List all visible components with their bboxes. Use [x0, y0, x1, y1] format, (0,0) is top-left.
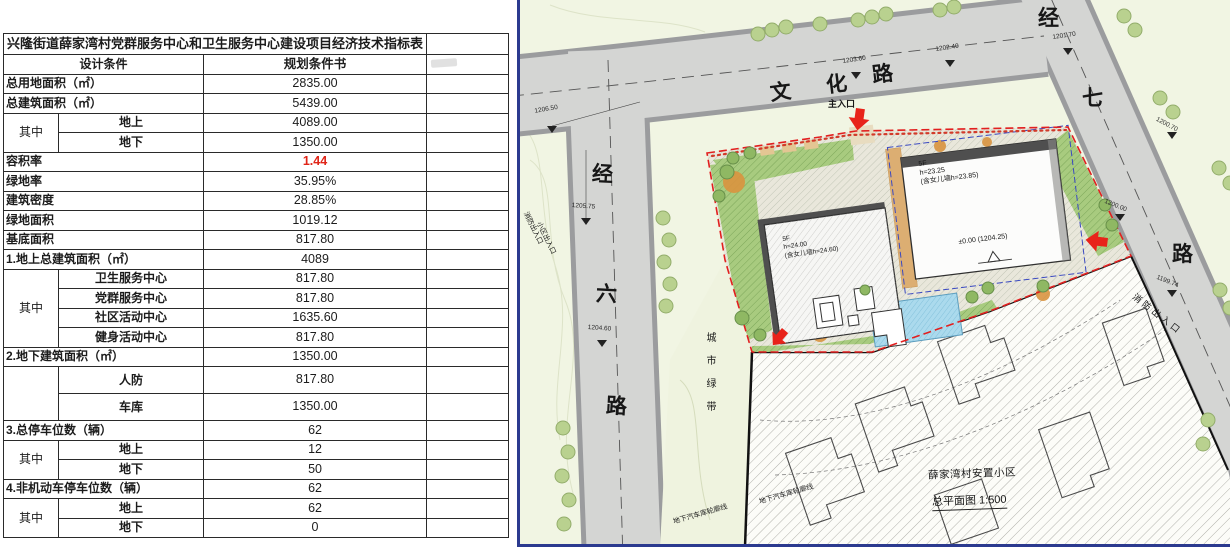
sub-cell: 党群服务中心: [59, 289, 204, 309]
table-row: 绿地率35.95%: [4, 172, 509, 192]
sub-cell: 地上: [59, 499, 204, 519]
lbl-cell: 绿地率: [4, 172, 204, 192]
blank-cell: [427, 347, 509, 367]
lbl-cell: 2.地下建筑面积（㎡）: [4, 347, 204, 367]
road-label-jingqi-3: 路: [1172, 238, 1193, 268]
grp-cell: 其中: [4, 113, 59, 152]
plan-title-label: 总平面图 1:500: [932, 491, 1007, 512]
table-row: 建筑密度28.85%: [4, 191, 509, 211]
road-label-jingliu-2: 六: [595, 277, 618, 308]
sub-cell: 社区活动中心: [59, 308, 204, 328]
table-row: 绿地面积1019.12: [4, 211, 509, 231]
road-label-jingqi-1: 经: [1038, 2, 1059, 32]
grp-cell: 其中: [4, 499, 59, 538]
val-cell: 817.80: [204, 289, 427, 309]
val-cell: 1019.12: [204, 211, 427, 231]
sub-cell: 卫生服务中心: [59, 269, 204, 289]
blank-cell: [427, 440, 509, 460]
blank-cell: [427, 230, 509, 250]
table-row: 容积率1.44: [4, 152, 509, 172]
val-cell: 817.80: [204, 328, 427, 348]
table-row: 地下50: [4, 460, 509, 480]
road-label-wenhua-1: 文: [768, 75, 792, 107]
table-row: 人防817.80: [4, 367, 509, 394]
blank-cell: [427, 328, 509, 348]
blank-cell: [427, 394, 509, 421]
table-row: 其中地上62: [4, 499, 509, 519]
lbl-cell: 总用地面积（㎡）: [4, 74, 204, 94]
table-row: 党群服务中心817.80: [4, 289, 509, 309]
main-entrance-label: 主入口: [828, 97, 855, 110]
green-belt-label: 城市绿带: [702, 332, 717, 424]
blank-cell: [427, 250, 509, 270]
table-row: 3.总停车位数（辆）62: [4, 421, 509, 441]
val-cell: 1350.00: [204, 347, 427, 367]
sub-cell: 地上: [59, 113, 204, 133]
table-row: 2.地下建筑面积（㎡）1350.00: [4, 347, 509, 367]
val-cell: 35.95%: [204, 172, 427, 192]
sub-cell: 地下: [59, 518, 204, 538]
val-cell: 817.80: [204, 367, 427, 394]
blank-cell: [427, 289, 509, 309]
indicator-table: 兴隆街道薛家湾村党群服务中心和卫生服务中心建设项目经济技术指标表 设计条件规划条…: [3, 33, 509, 538]
blank-cell: [427, 34, 509, 55]
table-row: 4.非机动车停车位数（辆）62: [4, 479, 509, 499]
lbl-cell: 总建筑面积（㎡）: [4, 94, 204, 114]
sub-cell: 人防: [59, 367, 204, 394]
table-title-row: 兴隆街道薛家湾村党群服务中心和卫生服务中心建设项目经济技术指标表: [4, 34, 509, 55]
table-row: 其中卫生服务中心817.80: [4, 269, 509, 289]
lbl-cell: 基底面积: [4, 230, 204, 250]
lbl-cell: 4.非机动车停车位数（辆）: [4, 479, 204, 499]
blank-cell: [427, 269, 509, 289]
sub-cell: 地下: [59, 133, 204, 153]
blank-cell: [427, 367, 509, 394]
blank-cell: [427, 172, 509, 192]
lbl-cell: 1.地上总建筑面积（㎡）: [4, 250, 204, 270]
val-cell: 1350.00: [204, 133, 427, 153]
table-row: 车库1350.00: [4, 394, 509, 421]
val-cell: 817.80: [204, 269, 427, 289]
blank-cell: [427, 74, 509, 94]
lbl-cell: 绿地面积: [4, 211, 204, 231]
val-cell: 62: [204, 421, 427, 441]
blank-cell: [427, 152, 509, 172]
sub-cell: 健身活动中心: [59, 328, 204, 348]
grp-cell: 其中: [4, 269, 59, 347]
table-row: 社区活动中心1635.60: [4, 308, 509, 328]
blank-cell: [427, 191, 509, 211]
blank-cell: [427, 113, 509, 133]
table-row: 地下0: [4, 518, 509, 538]
val-cell: 4089: [204, 250, 427, 270]
sub-cell: 车库: [59, 394, 204, 421]
residential-name-label: 薛家湾村安置小区: [928, 464, 1016, 482]
table-row: 1.地上总建筑面积（㎡）4089: [4, 250, 509, 270]
val-cell: 817.80: [204, 230, 427, 250]
table-row: 总用地面积（㎡）2835.00: [4, 74, 509, 94]
grp-cell: [4, 367, 59, 421]
blank-cell: [427, 308, 509, 328]
table-row: 总建筑面积（㎡）5439.00: [4, 94, 509, 114]
table-row: 地下1350.00: [4, 133, 509, 153]
val-cell: 28.85%: [204, 191, 427, 211]
road-label-wenhua-2: 化: [824, 67, 848, 99]
val-cell: 4089.00: [204, 113, 427, 133]
table-row: 基底面积817.80: [4, 230, 509, 250]
sub-cell: 地上: [59, 440, 204, 460]
val-cell: 5439.00: [204, 94, 427, 114]
road-label-wenhua-3: 路: [870, 57, 894, 89]
table-row: 其中地上12: [4, 440, 509, 460]
val-cell: 0: [204, 518, 427, 538]
val-cell: 1635.60: [204, 308, 427, 328]
road-label-jingliu-3: 路: [605, 389, 628, 420]
lbl-cell: 容积率: [4, 152, 204, 172]
val-cell: 62: [204, 499, 427, 519]
blank-cell: [427, 421, 509, 441]
sub-cell: 地下: [59, 460, 204, 480]
lbl-cell: 设计条件: [4, 55, 204, 75]
road-label-jingqi-2: 七: [1082, 82, 1103, 112]
blank-cell: [427, 460, 509, 480]
table-row: 其中地上4089.00: [4, 113, 509, 133]
blank-cell: [427, 499, 509, 519]
lbl-cell: 建筑密度: [4, 191, 204, 211]
table-row: 健身活动中心817.80: [4, 328, 509, 348]
road-label-jingliu-1: 经: [591, 157, 614, 188]
val-cell: 62: [204, 479, 427, 499]
val-cell: 规划条件书: [204, 55, 427, 75]
site-plan: 文 化 路 经 六 路 经 七 路 主入口 消防出入口 消防出入口 小区出入口 …: [517, 0, 1230, 547]
val-cell: 1.44: [204, 152, 427, 172]
val-cell: 12: [204, 440, 427, 460]
blank-cell: [427, 133, 509, 153]
blank-cell: [427, 518, 509, 538]
grp-cell: 其中: [4, 440, 59, 479]
val-cell: 50: [204, 460, 427, 480]
lbl-cell: 3.总停车位数（辆）: [4, 421, 204, 441]
val-cell: 2835.00: [204, 74, 427, 94]
blank-cell: [427, 211, 509, 231]
val-cell: 1350.00: [204, 394, 427, 421]
economic-indicator-table: 兴隆街道薛家湾村党群服务中心和卫生服务中心建设项目经济技术指标表 设计条件规划条…: [3, 33, 509, 538]
blank-cell: [427, 479, 509, 499]
blank-cell: [427, 94, 509, 114]
table-title: 兴隆街道薛家湾村党群服务中心和卫生服务中心建设项目经济技术指标表: [4, 34, 427, 55]
